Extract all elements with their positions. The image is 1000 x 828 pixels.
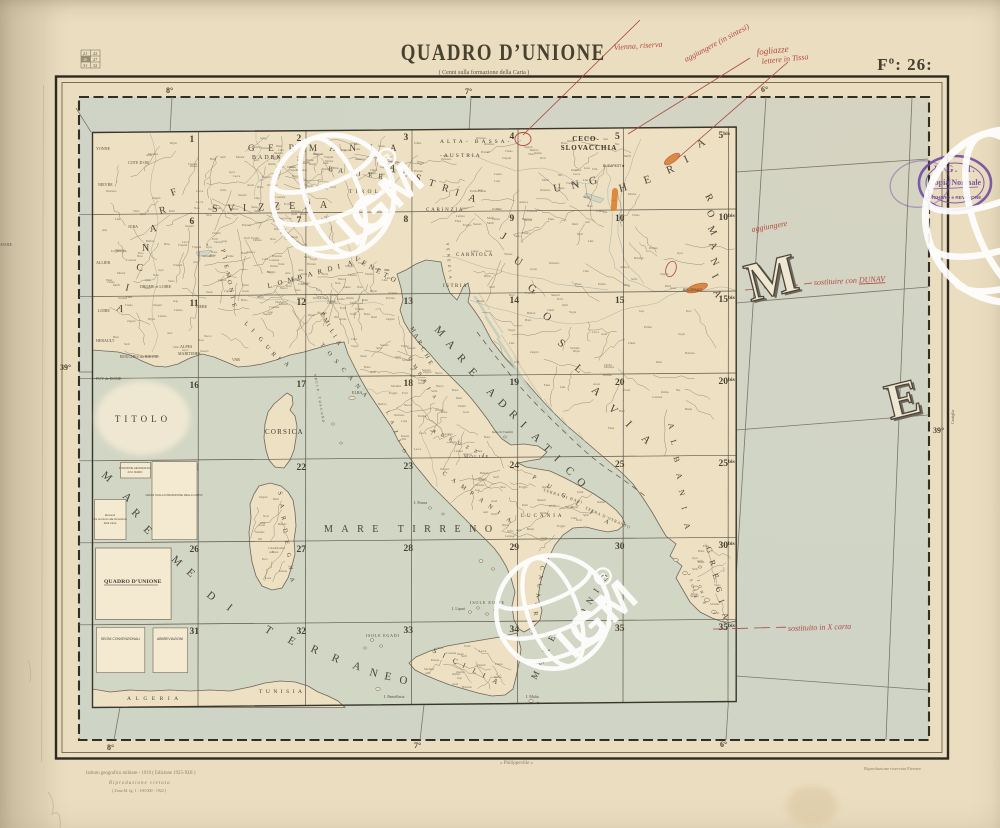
svg-text:E: E <box>268 143 274 153</box>
svg-text:SLOVACCHIA: SLOVACCHIA <box>561 144 618 152</box>
svg-text:Siena: Siena <box>583 195 590 199</box>
svg-text:QUADRO D’UNIONE: QUADRO D’UNIONE <box>401 39 606 66</box>
svg-text:Bona: Bona <box>525 318 532 322</box>
svg-text:21: 21 <box>83 51 87 56</box>
svg-text:Nuoro: Nuoro <box>435 371 443 375</box>
svg-text:Noto: Noto <box>153 273 160 277</box>
svg-text:Arad: Arad <box>670 286 676 290</box>
svg-text:M: M <box>309 143 317 153</box>
svg-text:Trento: Trento <box>505 149 513 153</box>
svg-text:Skutari: Skutari <box>537 498 546 502</box>
svg-text:12: 12 <box>297 298 307 308</box>
svg-text:Larissa: Larissa <box>454 449 463 453</box>
svg-text:COTE D OR: COTE D OR <box>128 160 149 165</box>
svg-text:Valona: Valona <box>325 159 334 163</box>
svg-text:13: 13 <box>404 297 414 307</box>
svg-text:Valona: Valona <box>214 240 223 244</box>
svg-text:7°: 7° <box>414 741 421 750</box>
svg-text:Setif: Setif <box>124 342 130 346</box>
svg-text:Nuoro: Nuoro <box>436 384 444 388</box>
svg-text:Patras: Patras <box>190 164 198 168</box>
svg-text:Brno: Brno <box>210 157 217 161</box>
svg-text:Siena: Siena <box>360 354 367 358</box>
svg-text:Foggia: Foggia <box>519 485 528 489</box>
svg-text:32: 32 <box>93 63 97 68</box>
svg-text:26: 26 <box>83 57 87 62</box>
svg-text:Asti: Asti <box>483 510 488 514</box>
svg-text:20: 20 <box>615 378 625 388</box>
svg-text:Beifort: Beifort <box>527 311 536 315</box>
svg-text:BOUCHES du RHONE: BOUCHES du RHONE <box>120 354 159 359</box>
svg-text:Arta: Arta <box>516 528 522 532</box>
svg-text:Zagreb: Zagreb <box>152 196 161 200</box>
svg-text:Cuneo: Cuneo <box>494 172 502 176</box>
svg-text:di M. MARIO: di M. MARIO <box>128 470 143 474</box>
svg-text:Setif: Setif <box>461 654 467 658</box>
svg-text:Sassari: Sassari <box>478 477 487 481</box>
svg-text:Sassari: Sassari <box>262 175 271 179</box>
svg-text:Larissa: Larissa <box>456 214 465 218</box>
svg-text:Nuoro: Nuoro <box>204 334 212 338</box>
svg-text:Osimo: Osimo <box>268 162 277 166</box>
svg-text:Gap: Gap <box>268 310 273 314</box>
svg-text:6: 6 <box>190 217 195 227</box>
svg-text:Vogra: Vogra <box>351 344 359 348</box>
svg-text:Oristano: Oristano <box>394 413 405 417</box>
svg-text:-AUSTRIA: -AUSTRIA <box>440 153 482 159</box>
svg-text:Siena: Siena <box>251 205 258 209</box>
svg-text:Prizren: Prizren <box>603 373 612 377</box>
svg-text:I. Lipari: I. Lipari <box>452 606 466 611</box>
svg-text:SEGNI CONVENZIONALI: SEGNI CONVENZIONALI <box>101 637 140 641</box>
svg-text:Rieti: Rieti <box>456 396 462 400</box>
svg-text:5: 5 <box>615 132 620 142</box>
svg-text:Setif: Setif <box>692 567 698 571</box>
svg-text:ISOLE EGADI: ISOLE EGADI <box>366 633 400 638</box>
svg-text:Annecy: Annecy <box>519 200 529 204</box>
svg-text:Larissa: Larissa <box>279 302 288 306</box>
svg-text:Trapani: Trapani <box>502 156 511 160</box>
svg-text:Mostar: Mostar <box>628 192 637 196</box>
svg-text:Prizren: Prizren <box>649 246 658 250</box>
svg-text:Bona: Bona <box>575 282 582 286</box>
svg-text:31: 31 <box>83 63 87 68</box>
svg-text:Arad: Arad <box>713 611 719 615</box>
svg-text:Trento: Trento <box>632 213 640 217</box>
svg-text:Bona: Bona <box>211 250 218 254</box>
svg-text:Teramo: Teramo <box>355 307 365 311</box>
svg-text:Parma: Parma <box>337 297 345 301</box>
svg-text:Osimo: Osimo <box>452 672 461 676</box>
svg-text:Novi: Novi <box>263 514 269 518</box>
svg-text:CARINZIA: CARINZIA <box>426 208 464 213</box>
svg-text:Novi: Novi <box>576 518 582 522</box>
svg-text:30: 30 <box>615 542 625 552</box>
svg-text:Annecy: Annecy <box>246 250 256 254</box>
svg-text:PUY de DOME: PUY de DOME <box>96 376 122 381</box>
svg-text:Mostar: Mostar <box>236 155 245 159</box>
svg-text:Split: Split <box>376 346 382 350</box>
svg-text:Terni: Terni <box>577 490 583 494</box>
svg-text:Setif: Setif <box>370 370 376 374</box>
svg-text:Forli: Forli <box>244 236 250 240</box>
svg-text:16: 16 <box>190 381 200 391</box>
svg-text:TITOLO: TITOLO <box>115 414 171 424</box>
svg-text:JURA: JURA <box>128 224 138 229</box>
svg-text:Riproduzione riservata Firenze: Riproduzione riservata Firenze <box>864 766 921 771</box>
svg-text:Noto: Noto <box>194 206 201 210</box>
svg-text:Noto: Noto <box>270 237 277 241</box>
svg-text:ISTRIA: ISTRIA <box>443 284 468 289</box>
svg-text:Beifort: Beifort <box>278 522 287 526</box>
svg-text:Aosta: Aosta <box>530 267 538 271</box>
svg-text:Graz: Graz <box>463 410 469 414</box>
svg-text:Linz: Linz <box>588 239 594 243</box>
svg-text:Lons: Lons <box>262 257 269 261</box>
svg-text:Sofia: Sofia <box>697 559 704 563</box>
svg-text:Arta: Arta <box>167 331 173 335</box>
svg-text:Larissa: Larissa <box>348 273 357 277</box>
svg-text:BELGRADO: BELGRADO <box>683 288 702 292</box>
svg-text:Moulins: Moulins <box>391 384 402 388</box>
svg-text:Bona: Bona <box>698 549 705 553</box>
svg-text:Trapani: Trapani <box>192 245 201 249</box>
svg-text:Melfi: Melfi <box>542 178 549 182</box>
svg-text:Osimo: Osimo <box>597 500 606 504</box>
svg-text:MARE TIRRENO: MARE TIRRENO <box>324 524 501 535</box>
svg-text:Szeged: Szeged <box>153 303 162 307</box>
svg-text:Zagreb: Zagreb <box>127 319 136 323</box>
svg-text:Lecce: Lecce <box>196 189 204 193</box>
svg-text:27: 27 <box>93 57 97 62</box>
svg-text:Terni: Terni <box>541 536 547 540</box>
svg-text:Enna: Enna <box>106 278 113 282</box>
svg-text:Gyor: Gyor <box>260 136 266 140</box>
svg-text:QUADRO D’UNIONE: QUADRO D’UNIONE <box>104 579 162 585</box>
svg-text:ELBA: ELBA <box>352 390 363 395</box>
svg-text:Dijon: Dijon <box>257 295 264 299</box>
svg-text:Gap: Gap <box>639 309 644 313</box>
svg-text:Chieti: Chieti <box>628 341 635 345</box>
svg-text:Vogra: Vogra <box>508 328 516 332</box>
svg-text:Prizren: Prizren <box>386 296 395 300</box>
svg-text:Mostar: Mostar <box>117 271 126 275</box>
svg-text:Bolzano: Bolzano <box>117 249 127 253</box>
svg-text:Sassari: Sassari <box>238 193 247 197</box>
svg-text:Dijon: Dijon <box>306 184 313 188</box>
svg-text:Lecce: Lecce <box>479 649 487 653</box>
svg-text:ALGERIA: ALGERIA <box>127 696 183 702</box>
svg-text:MARITIMES: MARITIMES <box>178 351 200 356</box>
svg-text:Bolzano: Bolzano <box>685 351 695 355</box>
svg-text:Gyor: Gyor <box>158 268 164 272</box>
svg-text:Passau: Passau <box>478 189 487 193</box>
svg-text:Bona: Bona <box>364 312 371 316</box>
svg-text:Parma: Parma <box>418 414 426 418</box>
svg-text:Zagreb: Zagreb <box>477 663 486 667</box>
svg-text:Passau: Passau <box>279 569 288 573</box>
svg-text:Cosenza: Cosenza <box>275 195 286 199</box>
svg-text:17: 17 <box>297 380 307 390</box>
svg-text:Siena: Siena <box>378 144 385 148</box>
svg-text:25: 25 <box>615 460 625 470</box>
svg-text:19: 19 <box>510 378 520 388</box>
svg-text:( Zona M. fg. 1 : 100 000 -: ( Zona M. fg. 1 : 100 000 - 1922 ) <box>112 788 167 793</box>
svg-text:Enna: Enna <box>548 217 555 221</box>
svg-text:Larissa: Larissa <box>174 308 183 312</box>
svg-text:Forli: Forli <box>557 297 563 301</box>
svg-text:Foggia: Foggia <box>389 391 398 395</box>
svg-text:Forli: Forli <box>340 306 346 310</box>
svg-text:Forli: Forli <box>402 391 408 395</box>
svg-text:Ulm: Ulm <box>145 278 151 282</box>
svg-text:Cosenza: Cosenza <box>446 651 457 655</box>
svg-text:Brno: Brno <box>330 299 337 303</box>
svg-text:Noto: Noto <box>335 281 342 285</box>
svg-text:Banja: Banja <box>477 299 485 303</box>
svg-text:Ulm: Ulm <box>514 360 520 364</box>
svg-text:Moulins: Moulins <box>148 152 159 156</box>
svg-text:Trento: Trento <box>522 231 530 235</box>
svg-text:34: 34 <box>510 625 520 635</box>
svg-text:Larissa: Larissa <box>320 296 329 300</box>
svg-text:Terni: Terni <box>350 312 356 316</box>
svg-text:Dijon: Dijon <box>370 289 377 293</box>
svg-text:Zagreb: Zagreb <box>530 350 539 354</box>
svg-text:Trento: Trento <box>125 303 133 307</box>
svg-text:Tunisi: Tunisi <box>365 272 373 276</box>
svg-text:Banja: Banja <box>527 527 535 531</box>
svg-text:Bona: Bona <box>364 365 371 369</box>
svg-text:22: 22 <box>297 463 307 473</box>
svg-text:Brno: Brno <box>619 409 626 413</box>
svg-text:Linz: Linz <box>509 341 515 345</box>
svg-text:Annecy: Annecy <box>355 157 365 161</box>
svg-text:Ulm: Ulm <box>592 167 598 171</box>
svg-text:Pecs: Pecs <box>549 504 555 508</box>
svg-text:Cosenza: Cosenza <box>126 258 137 262</box>
svg-text:Linz: Linz <box>560 385 566 389</box>
svg-text:Lecce: Lecce <box>196 200 204 204</box>
svg-text:Nuoro: Nuoro <box>404 403 412 407</box>
svg-text:Oristano: Oristano <box>106 189 117 193</box>
svg-text:Rieti: Rieti <box>656 360 662 364</box>
svg-text:E: E <box>289 201 295 212</box>
svg-text:Cuneo: Cuneo <box>343 285 351 289</box>
svg-text:( Cenni sulla formazione della: ( Cenni sulla formazione della Carta ) <box>439 69 530 76</box>
svg-text:Vogra: Vogra <box>569 310 577 314</box>
svg-text:Noto: Noto <box>587 204 594 208</box>
svg-text:Patras: Patras <box>339 317 347 321</box>
svg-text:Sassari: Sassari <box>200 349 209 353</box>
svg-text:Zagreb: Zagreb <box>386 317 395 321</box>
svg-text:Elementi: Elementi <box>105 513 116 517</box>
svg-text:POSIZIONE GEOGRAFICA: POSIZIONE GEOGRAFICA <box>119 466 151 470</box>
svg-text:Patras: Patras <box>492 207 500 211</box>
svg-text:3: 3 <box>404 133 409 143</box>
svg-text:Sion: Sion <box>295 288 301 292</box>
svg-text:Arta: Arta <box>425 671 431 675</box>
svg-text:Lons: Lons <box>265 576 272 580</box>
svg-text:33: 33 <box>404 626 414 636</box>
svg-text:Melfi: Melfi <box>350 301 357 305</box>
svg-text:DROME et LOIRE: DROME et LOIRE <box>140 284 172 289</box>
svg-text:Vogra: Vogra <box>417 161 425 165</box>
svg-text:ISERE: ISERE <box>196 304 208 309</box>
svg-text:Bolzano: Bolzano <box>634 256 644 260</box>
svg-text:YONNE: YONNE <box>96 146 111 151</box>
svg-text:Enna: Enna <box>608 426 615 430</box>
svg-text:Moulins: Moulins <box>275 546 286 550</box>
svg-text:Arta: Arta <box>285 271 291 275</box>
svg-text:24: 24 <box>510 461 520 471</box>
svg-text:Cuneo: Cuneo <box>495 662 503 666</box>
svg-text:Riproduzione vietata: Riproduzione vietata <box>108 781 171 786</box>
svg-text:18: 18 <box>404 379 414 389</box>
svg-text:CORSICA: CORSICA <box>265 428 304 436</box>
svg-text:22: 22 <box>93 51 97 56</box>
svg-text:Lecce: Lecce <box>573 172 581 176</box>
svg-text:Z: Z <box>258 202 264 213</box>
svg-text:Aosta: Aosta <box>242 289 250 293</box>
svg-text:Oristano: Oristano <box>540 188 551 192</box>
svg-text:Bona: Bona <box>257 185 264 189</box>
svg-text:Trapani: Trapani <box>173 263 182 267</box>
svg-text:Passau: Passau <box>431 658 440 662</box>
svg-text:Noto: Noto <box>286 284 293 288</box>
svg-text:HERAULT: HERAULT <box>96 338 115 343</box>
svg-text:Trapani: Trapani <box>324 155 333 159</box>
svg-text:Rieti: Rieti <box>273 497 279 501</box>
svg-text:Tunisi: Tunisi <box>604 363 612 367</box>
svg-text:31: 31 <box>190 627 200 637</box>
svg-text:della Carta: della Carta <box>104 521 117 525</box>
svg-text:S.Denis: S.Denis <box>570 346 580 350</box>
svg-text:Ulm: Ulm <box>260 521 266 525</box>
svg-text:Melfi: Melfi <box>487 216 494 220</box>
svg-text:23: 23 <box>404 462 414 472</box>
svg-text:Isole di Tremiti: Isole di Tremiti <box>492 430 513 434</box>
svg-text:28: 28 <box>404 544 414 554</box>
svg-text:Arad: Arad <box>452 682 458 686</box>
svg-text:G: G <box>248 143 255 153</box>
svg-text:Brno: Brno <box>164 242 171 246</box>
svg-text:Noto: Noto <box>137 254 144 258</box>
svg-text:I. Ponza: I. Ponza <box>414 500 427 505</box>
svg-text:Larissa: Larissa <box>253 238 262 242</box>
svg-text:Sion: Sion <box>500 485 506 489</box>
svg-text:Setif: Setif <box>493 475 499 479</box>
svg-text:Vogra: Vogra <box>678 332 686 336</box>
svg-text:Asti: Asti <box>102 228 107 232</box>
svg-text:S.Denis: S.Denis <box>255 530 265 534</box>
svg-text:Enna: Enna <box>544 383 551 387</box>
svg-text:Tunisi: Tunisi <box>458 404 466 408</box>
svg-text:Gap: Gap <box>173 299 178 303</box>
svg-text:32: 32 <box>297 627 307 637</box>
svg-text:Chur: Chur <box>351 337 357 341</box>
svg-text:Lecce: Lecce <box>414 447 422 451</box>
svg-text:VAR: VAR <box>232 357 240 362</box>
svg-text:Prizren: Prizren <box>242 223 251 227</box>
svg-text:Chur: Chur <box>254 196 260 200</box>
svg-text:Vasto: Vasto <box>528 152 535 156</box>
svg-text:ABBREVIAZIONI: ABBREVIAZIONI <box>157 637 183 641</box>
svg-text:CENNI SULLA FORMAZIONE DELLA C: CENNI SULLA FORMAZIONE DELLA CARTA <box>145 493 202 497</box>
svg-text:Linz: Linz <box>115 217 121 221</box>
svg-text:Bona: Bona <box>484 435 491 439</box>
svg-text:A: A <box>320 200 328 211</box>
svg-text:Osimo: Osimo <box>346 296 355 300</box>
svg-text:Dijon: Dijon <box>148 317 155 321</box>
svg-text:Osimo: Osimo <box>306 158 315 162</box>
svg-text:ALLIER: ALLIER <box>96 260 111 265</box>
svg-text:S.Denis: S.Denis <box>202 254 212 258</box>
svg-text:BADEN: BADEN <box>252 155 283 161</box>
svg-text:Passau: Passau <box>401 434 410 438</box>
svg-text:Parma: Parma <box>313 296 321 300</box>
svg-text:Larissa: Larissa <box>505 534 514 538</box>
svg-text:I. Pantelleria: I. Pantelleria <box>384 694 405 699</box>
svg-text:Foggia: Foggia <box>463 223 472 227</box>
svg-text:Zagreb: Zagreb <box>212 231 221 235</box>
svg-text:39°: 39° <box>933 426 944 435</box>
svg-text:Enna: Enna <box>455 219 462 223</box>
svg-text:Rieti: Rieti <box>362 298 368 302</box>
svg-text:Zagreb: Zagreb <box>660 272 669 276</box>
svg-text:Terni: Terni <box>464 644 470 648</box>
svg-text:Prizren: Prizren <box>481 150 490 154</box>
svg-text:Novi: Novi <box>577 232 583 236</box>
svg-text:« Philippeville »: « Philippeville » <box>500 761 534 766</box>
svg-text:Arad: Arad <box>601 332 607 336</box>
svg-text:1: 1 <box>190 135 195 145</box>
svg-text:Dijon: Dijon <box>308 313 315 317</box>
svg-text:Enna: Enna <box>126 295 133 299</box>
svg-text:Siena: Siena <box>206 290 213 294</box>
svg-text:39°: 39° <box>60 363 71 372</box>
svg-text:Sofia: Sofia <box>220 188 227 192</box>
svg-text:CECO-: CECO- <box>572 135 600 143</box>
svg-text:10: 10 <box>615 214 625 224</box>
svg-text:Split: Split <box>395 355 401 359</box>
svg-text:Siena: Siena <box>242 283 249 287</box>
svg-text:Banja: Banja <box>685 407 693 411</box>
svg-text:Vasto: Vasto <box>168 279 175 283</box>
svg-text:29: 29 <box>510 543 520 553</box>
svg-text:MOLISE: MOLISE <box>464 454 490 459</box>
svg-text:Patras: Patras <box>623 388 631 392</box>
svg-text:CARNIOLA: CARNIOLA <box>456 253 494 258</box>
svg-text:Cosenza: Cosenza <box>652 395 663 399</box>
svg-text:15: 15 <box>615 296 625 306</box>
svg-text:27: 27 <box>297 545 307 555</box>
svg-text:Dijon: Dijon <box>170 141 177 145</box>
svg-text:Parma: Parma <box>598 282 606 286</box>
svg-text:Rieti: Rieti <box>169 209 175 213</box>
svg-text:S.Denis: S.Denis <box>388 291 398 295</box>
svg-text:Sofia: Sofia <box>631 277 638 281</box>
svg-text:TUNISIA: TUNISIA <box>259 689 306 695</box>
svg-text:Teramo: Teramo <box>435 408 445 412</box>
svg-text:Foggia: Foggia <box>557 524 566 528</box>
svg-text:Asti: Asti <box>603 137 608 141</box>
svg-text:Chur: Chur <box>583 269 589 273</box>
svg-text:Gyor: Gyor <box>677 251 683 255</box>
svg-text:Pecs: Pecs <box>554 504 560 508</box>
svg-text:S: S <box>212 204 218 215</box>
svg-text:Vogra: Vogra <box>310 257 318 261</box>
